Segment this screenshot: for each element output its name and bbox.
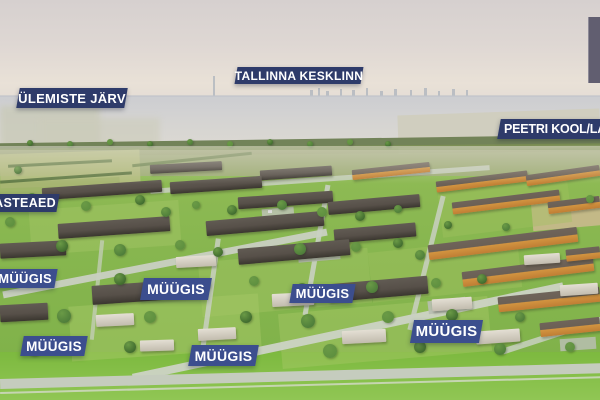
for-sale-badge-1[interactable]: MÜÜGIS (0, 269, 56, 288)
small-building (140, 339, 174, 351)
scenery-element (477, 124, 481, 127)
scenery-element (258, 129, 270, 136)
scenery-element (280, 133, 290, 139)
tree (240, 311, 252, 323)
label-tallinna-kesklinn: TALLINNA KESKLINN (236, 67, 362, 84)
for-sale-badge-3[interactable]: MÜÜGIS (291, 284, 354, 303)
terraced-house-row (0, 303, 48, 322)
skyline-building (213, 76, 215, 96)
scenery-element (240, 133, 252, 140)
scenery-element (455, 140, 460, 143)
tree (382, 311, 394, 323)
aerial-development-render: ÜLEMISTE JÄRV TALLINNA KESKLINN PEETRI K… (0, 0, 600, 400)
tree (565, 342, 575, 352)
tree (586, 195, 594, 203)
scenery-element (294, 152, 300, 156)
tree (57, 309, 71, 323)
tree (192, 201, 200, 209)
scenery-element (366, 139, 375, 143)
label-text: ÜLEMISTE JÄRV (18, 91, 126, 106)
label-lasteaed: ASTEAED (0, 194, 58, 212)
label-text: MÜÜGIS (296, 286, 350, 301)
tree (67, 141, 73, 147)
scenery-element (433, 128, 438, 131)
scenery-element (510, 152, 516, 156)
label-ulemiste-jarv: ÜLEMISTE JÄRV (18, 88, 126, 108)
tree (444, 221, 452, 229)
scenery-element (330, 140, 340, 145)
label-peetri-kool-lasteaed: PEETRI KOOL/LAS (499, 119, 600, 139)
tree (144, 311, 156, 323)
label-text: TALLINNA KESKLINN (235, 69, 363, 83)
for-sale-badge-6[interactable]: MÜÜGIS (412, 320, 481, 343)
tree (114, 273, 126, 285)
tree (502, 223, 510, 231)
scenery-element (268, 210, 272, 213)
tree (187, 139, 193, 145)
scenery-element (186, 158, 192, 162)
scenery-element (416, 138, 421, 141)
scenery-element (492, 132, 497, 135)
tree (135, 195, 145, 205)
tree (494, 343, 506, 355)
scenery-element (330, 156, 337, 160)
tree (124, 341, 136, 353)
tree (385, 141, 391, 147)
small-building (96, 313, 135, 327)
tree (175, 240, 185, 250)
label-text: PEETRI KOOL/LAS (504, 122, 600, 136)
tree (366, 281, 378, 293)
scenery-element (535, 140, 540, 143)
tree (393, 238, 403, 248)
scenery-element (448, 122, 453, 125)
tree (307, 141, 313, 147)
scenery-element (495, 142, 500, 145)
tree (14, 166, 22, 174)
tree (27, 140, 33, 146)
tree (267, 139, 273, 145)
tree (415, 250, 425, 260)
scenery-element (420, 120, 424, 123)
tree (227, 141, 233, 147)
tree (351, 242, 361, 252)
label-text: ASTEAED (0, 196, 56, 210)
tree (107, 139, 113, 145)
tree (161, 207, 171, 217)
scenery-element (574, 142, 578, 145)
tree (394, 205, 402, 213)
label-text: MÜÜGIS (416, 323, 478, 340)
scenery-element (580, 152, 586, 156)
tree (515, 312, 525, 322)
label-text: MÜÜGIS (195, 348, 253, 364)
tree (56, 240, 68, 252)
small-building (176, 255, 217, 268)
scenery-element (205, 136, 215, 142)
for-sale-badge-5[interactable]: MÜÜGIS (190, 345, 257, 366)
tree (227, 205, 237, 215)
scenery-element (222, 152, 228, 156)
tree (301, 314, 315, 328)
tree (81, 201, 91, 211)
small-building (198, 327, 237, 341)
tree (347, 139, 353, 145)
tree (5, 217, 15, 227)
scenery-element (88, 156, 93, 159)
scenery-element (474, 158, 480, 162)
tree (477, 274, 487, 284)
tree (114, 244, 126, 256)
scenery-element (463, 130, 468, 133)
scenery-element (258, 158, 264, 162)
small-building (342, 329, 387, 344)
tree (317, 207, 327, 217)
scenery-element (222, 130, 236, 138)
scenery-element (402, 156, 408, 160)
tree (147, 141, 153, 147)
tree (355, 211, 365, 221)
tree (431, 278, 441, 288)
label-text: MÜÜGIS (0, 271, 52, 286)
scenery-element (438, 152, 444, 156)
for-sale-badge-4[interactable]: MÜÜGIS (22, 336, 86, 356)
scenery-element (408, 126, 413, 130)
tree (323, 344, 337, 358)
label-text: MÜÜGIS (26, 339, 82, 354)
label-text: MÜÜGIS (147, 281, 205, 297)
tree (294, 243, 306, 255)
for-sale-badge-2[interactable]: MÜÜGIS (142, 278, 210, 300)
scenery-element (150, 154, 156, 158)
scenery-element (118, 160, 123, 164)
tree (277, 200, 287, 210)
tree (213, 247, 223, 257)
scenery-element (546, 158, 552, 162)
corner-overlay (588, 17, 600, 83)
scenery-element (366, 150, 372, 154)
tree (249, 276, 259, 286)
